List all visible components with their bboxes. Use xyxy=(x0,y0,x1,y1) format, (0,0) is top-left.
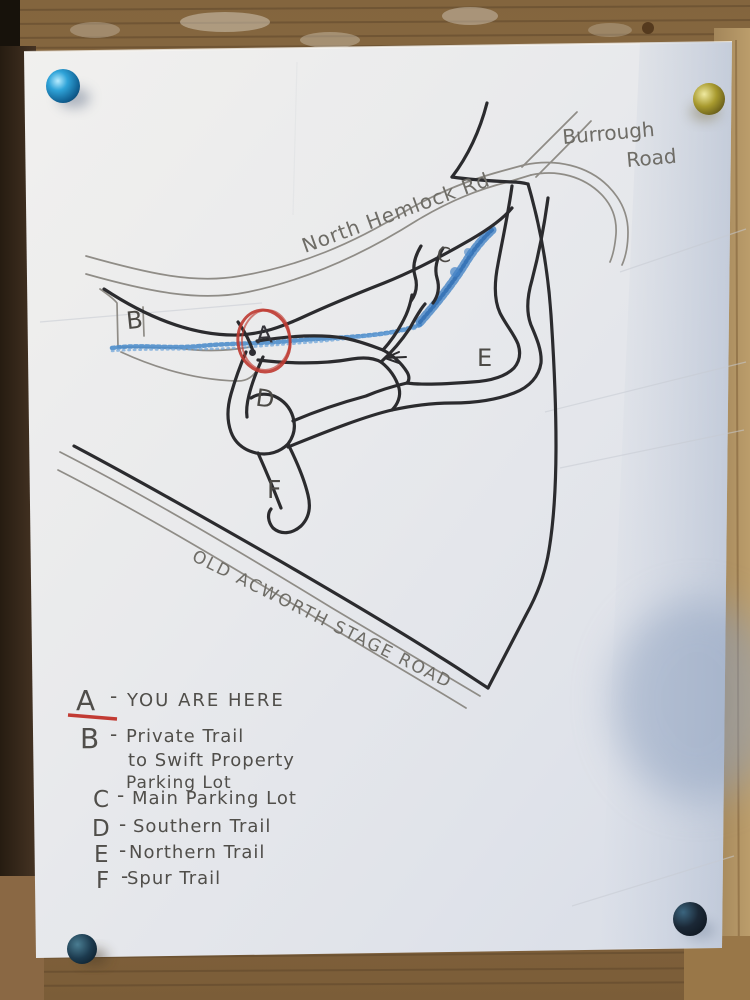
legend-label-d: Southern Trail xyxy=(133,816,271,837)
legend-sep-a: - xyxy=(110,684,117,708)
marker-a: A xyxy=(255,320,274,349)
pushpin-top-left xyxy=(46,69,80,103)
pushpin-top-right xyxy=(693,83,725,115)
legend-sep-e: - xyxy=(119,838,126,862)
marker-e: E xyxy=(477,344,492,372)
legend-key-c: C xyxy=(93,787,109,813)
marker-f: F xyxy=(267,475,281,504)
marker-b: B xyxy=(125,305,144,335)
trail-map-photo-svg: A B C D E F North Hemlock Rd Burrough Ro… xyxy=(0,0,750,1000)
legend-key-f: F xyxy=(96,868,109,894)
marker-c: C xyxy=(437,243,451,267)
legend-label-e: Northern Trail xyxy=(129,842,265,863)
legend-label-f: Spur Trail xyxy=(127,868,221,889)
legend-key-e: E xyxy=(94,842,109,868)
wood-knot xyxy=(642,22,654,34)
legend-label-a: YOU ARE HERE xyxy=(126,690,285,711)
trail-map-photo: A B C D E F North Hemlock Rd Burrough Ro… xyxy=(0,0,750,1000)
pushpin-bottom-right xyxy=(673,902,707,936)
marker-d: D xyxy=(254,384,276,414)
legend-label-c: Main Parking Lot xyxy=(132,788,297,809)
legend-key-a: A xyxy=(76,684,95,717)
legend-key-b: B xyxy=(80,722,99,755)
legend-label-b1: Private Trail xyxy=(126,726,244,747)
legend-label-b2: to Swift Property xyxy=(128,750,295,771)
legend-sep-b: - xyxy=(110,722,117,746)
pushpin-bottom-left xyxy=(67,934,97,964)
you-are-here-dot xyxy=(249,349,256,356)
legend-sep-c: - xyxy=(117,783,124,807)
legend-key-d: D xyxy=(92,816,110,842)
legend-sep-d: - xyxy=(119,812,126,836)
burrough-label-line2: Road xyxy=(625,144,677,172)
